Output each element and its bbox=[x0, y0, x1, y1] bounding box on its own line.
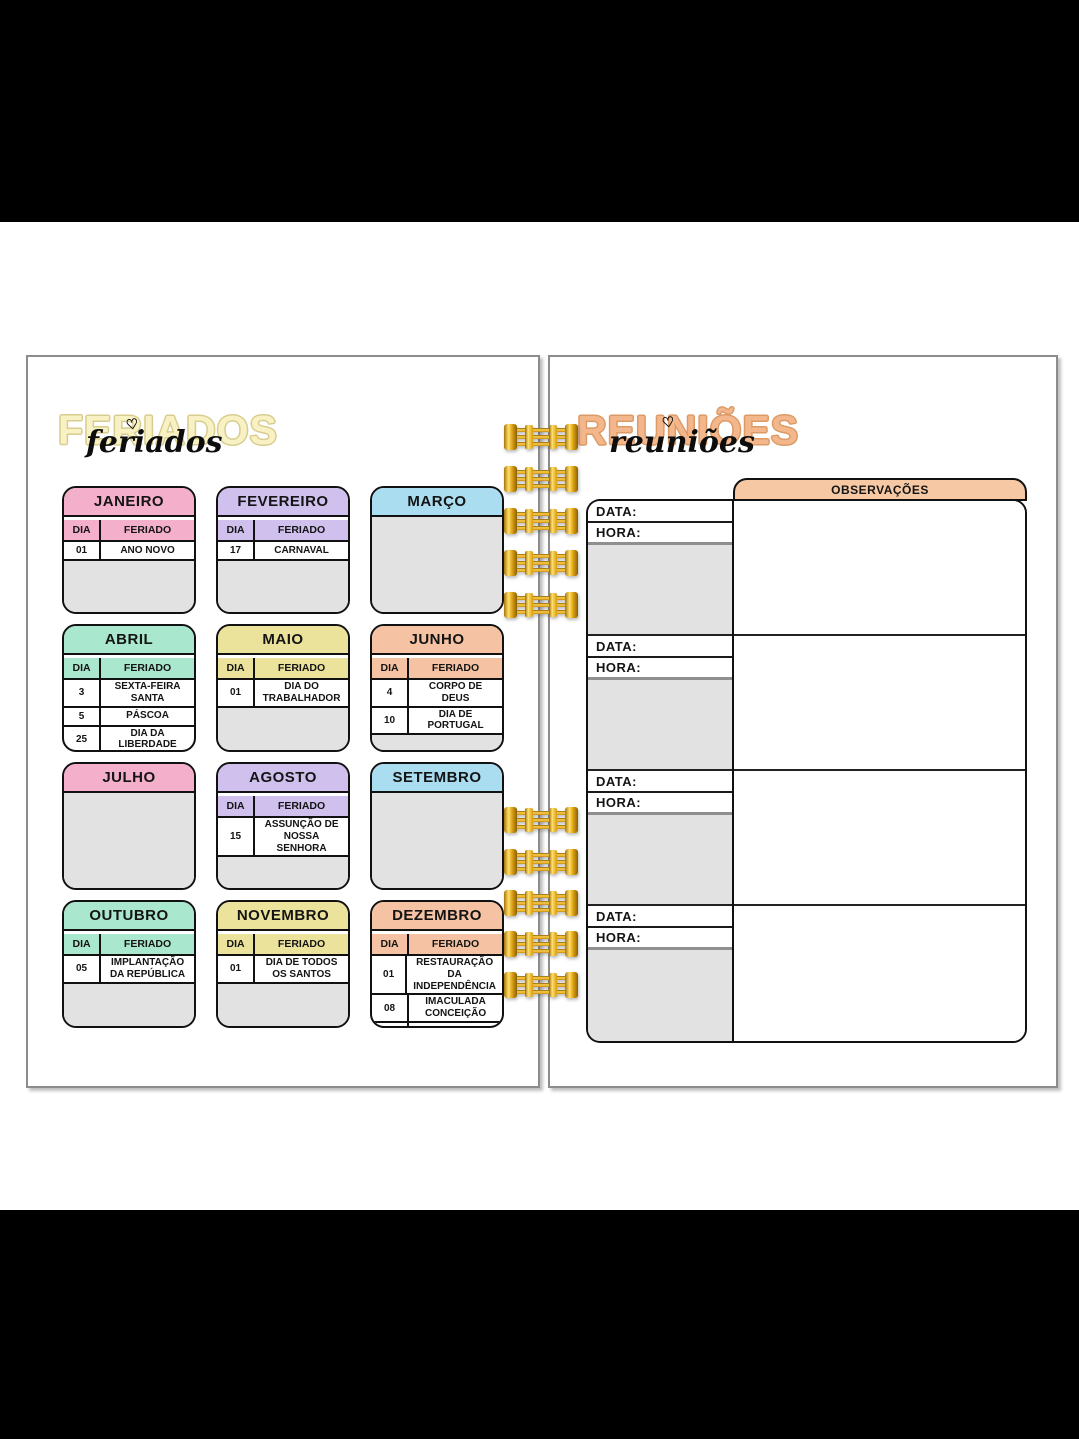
binder-ring bbox=[504, 424, 578, 450]
holiday-cell: ANO NOVO bbox=[101, 542, 194, 559]
time-label: HORA: bbox=[596, 930, 641, 945]
meetings-title-outline: REUNIÕES bbox=[577, 410, 799, 451]
month-card-maio: MAIO DIA FERIADO 01 DIA DO TRABALHADOR bbox=[216, 624, 350, 752]
day-cell: 4 bbox=[372, 680, 409, 706]
table-row: 10 DIA DE PORTUGAL bbox=[372, 708, 502, 736]
month-name: JANEIRO bbox=[64, 488, 194, 517]
date-field: DATA: bbox=[588, 771, 732, 793]
notes-area bbox=[64, 984, 194, 1026]
table-row: 01 DIA DE TODOS OS SANTOS bbox=[218, 956, 348, 984]
month-name: JUNHO bbox=[372, 626, 502, 655]
holiday-cell: NATAL bbox=[409, 1023, 502, 1028]
table-row: 17 CARNAVAL bbox=[218, 542, 348, 561]
col-holiday: FERIADO bbox=[409, 934, 502, 954]
table-row: 01 DIA DO TRABALHADOR bbox=[218, 680, 348, 708]
table-header: DIA FERIADO bbox=[64, 934, 194, 956]
notes-area bbox=[588, 950, 732, 1041]
day-cell: 01 bbox=[64, 542, 101, 559]
observations-cell-2 bbox=[734, 636, 1025, 771]
binder-ring bbox=[504, 508, 578, 534]
month-name: NOVEMBRO bbox=[218, 902, 348, 931]
month-card-agosto: AGOSTO DIA FERIADO 15 ASSUNÇÃO DE NOSSA … bbox=[216, 762, 350, 890]
heart-icon: ♡ bbox=[661, 413, 676, 432]
time-label: HORA: bbox=[596, 660, 641, 675]
binder-ring bbox=[504, 466, 578, 492]
holidays-page: FERIADOS feriados ♡ JANEIRO DIA FERIADO … bbox=[26, 355, 540, 1088]
holiday-cell: IMACULADA CONCEIÇÃO bbox=[409, 995, 502, 1021]
notes-area bbox=[64, 561, 194, 612]
holiday-cell: ASSUNÇÃO DE NOSSA SENHORA bbox=[255, 818, 348, 855]
month-card-abril: ABRIL DIA FERIADO 3 SEXTA-FEIRA SANTA 5 … bbox=[62, 624, 196, 752]
holiday-cell: DIA DA LIBERDADE bbox=[101, 727, 194, 752]
time-field: HORA: bbox=[588, 793, 732, 815]
day-cell: 25 bbox=[64, 727, 101, 752]
month-name: JULHO bbox=[64, 764, 194, 793]
notes-area bbox=[372, 517, 502, 612]
table-header: DIA FERIADO bbox=[372, 934, 502, 956]
table-row: 25 DIA DA LIBERDADE bbox=[64, 727, 194, 752]
holiday-cell: DIA DO TRABALHADOR bbox=[255, 680, 348, 706]
col-holiday: FERIADO bbox=[255, 658, 348, 678]
month-card-novembro: NOVEMBRO DIA FERIADO 01 DIA DE TODOS OS … bbox=[216, 900, 350, 1028]
col-day: DIA bbox=[64, 520, 101, 540]
observations-column bbox=[732, 499, 1027, 1043]
table-header: DIA FERIADO bbox=[64, 658, 194, 680]
month-name: SETEMBRO bbox=[372, 764, 502, 793]
date-label: DATA: bbox=[596, 639, 637, 654]
holidays-title-outline: FERIADOS bbox=[58, 410, 278, 451]
date-label: DATA: bbox=[596, 774, 637, 789]
notes-area bbox=[588, 545, 732, 634]
col-day: DIA bbox=[218, 796, 255, 816]
notes-area bbox=[218, 857, 348, 888]
notes-area bbox=[372, 793, 502, 888]
white-backdrop: FERIADOS feriados ♡ JANEIRO DIA FERIADO … bbox=[0, 222, 1079, 1210]
table-header: DIA FERIADO bbox=[218, 796, 348, 818]
day-cell: 05 bbox=[64, 956, 101, 982]
date-label: DATA: bbox=[596, 504, 637, 519]
month-card-setembro: SETEMBRO bbox=[370, 762, 504, 890]
binder-ring bbox=[504, 550, 578, 576]
holiday-cell: DIA DE TODOS OS SANTOS bbox=[255, 956, 348, 982]
month-card-marco: MARÇO bbox=[370, 486, 504, 614]
month-name: MAIO bbox=[218, 626, 348, 655]
notes-area bbox=[588, 815, 732, 904]
col-day: DIA bbox=[218, 934, 255, 954]
col-day: DIA bbox=[218, 658, 255, 678]
month-name: OUTUBRO bbox=[64, 902, 194, 931]
month-card-junho: JUNHO DIA FERIADO 4 CORPO DE DEUS 10 DIA… bbox=[370, 624, 504, 752]
table-header: DIA FERIADO bbox=[64, 520, 194, 542]
heart-icon: ♡ bbox=[125, 415, 140, 434]
holiday-cell: RESTAURAÇÃO DA INDEPENDÊNCIA bbox=[407, 956, 502, 993]
table-row: 15 ASSUNÇÃO DE NOSSA SENHORA bbox=[218, 818, 348, 857]
day-cell: 25 bbox=[372, 1023, 409, 1028]
table-row: 05 IMPLANTAÇÃO DA REPÚBLICA bbox=[64, 956, 194, 984]
month-name: MARÇO bbox=[372, 488, 502, 517]
col-holiday: FERIADO bbox=[101, 934, 194, 954]
binder-ring bbox=[504, 849, 578, 875]
holiday-cell: SEXTA-FEIRA SANTA bbox=[101, 680, 194, 706]
day-cell: 17 bbox=[218, 542, 255, 559]
table-row: 08 IMACULADA CONCEIÇÃO bbox=[372, 995, 502, 1023]
table-row: 25 NATAL bbox=[372, 1023, 502, 1028]
meeting-section-1: DATA: HORA: bbox=[588, 501, 732, 636]
date-field: DATA: bbox=[588, 636, 732, 658]
day-cell: 01 bbox=[372, 956, 407, 993]
binder-ring bbox=[504, 972, 578, 998]
observations-header: OBSERVAÇÕES bbox=[733, 478, 1027, 501]
planner-spread: FERIADOS feriados ♡ JANEIRO DIA FERIADO … bbox=[0, 0, 1079, 1439]
meetings-title: REUNIÕES reuniões ♡ bbox=[577, 410, 799, 451]
day-cell: 10 bbox=[372, 708, 409, 734]
col-day: DIA bbox=[64, 658, 101, 678]
binder-ring bbox=[504, 807, 578, 833]
binder-ring bbox=[504, 592, 578, 618]
notes-area bbox=[218, 561, 348, 612]
date-field: DATA: bbox=[588, 501, 732, 523]
month-name: AGOSTO bbox=[218, 764, 348, 793]
notes-area bbox=[64, 793, 194, 888]
time-label: HORA: bbox=[596, 795, 641, 810]
col-day: DIA bbox=[372, 658, 409, 678]
col-holiday: FERIADO bbox=[255, 520, 348, 540]
table-row: 01 RESTAURAÇÃO DA INDEPENDÊNCIA bbox=[372, 956, 502, 995]
col-day: DIA bbox=[64, 934, 101, 954]
meeting-section-4: DATA: HORA: bbox=[588, 906, 732, 1041]
observations-cell-1 bbox=[734, 501, 1025, 636]
day-cell: 08 bbox=[372, 995, 409, 1021]
table-row: 01 ANO NOVO bbox=[64, 542, 194, 561]
day-cell: 15 bbox=[218, 818, 255, 855]
months-grid: JANEIRO DIA FERIADO 01 ANO NOVO FEVEREIR… bbox=[62, 486, 504, 1028]
meeting-section-2: DATA: HORA: bbox=[588, 636, 732, 771]
observations-cell-4 bbox=[734, 906, 1025, 1041]
date-label: DATA: bbox=[596, 909, 637, 924]
month-card-julho: JULHO bbox=[62, 762, 196, 890]
day-cell: 01 bbox=[218, 956, 255, 982]
holiday-cell: DIA DE PORTUGAL bbox=[409, 708, 502, 734]
holiday-cell: IMPLANTAÇÃO DA REPÚBLICA bbox=[101, 956, 194, 982]
month-name: DEZEMBRO bbox=[372, 902, 502, 931]
time-label: HORA: bbox=[596, 525, 641, 540]
table-header: DIA FERIADO bbox=[218, 658, 348, 680]
notes-area bbox=[218, 984, 348, 1026]
time-field: HORA: bbox=[588, 928, 732, 950]
binder-ring bbox=[504, 931, 578, 957]
month-card-outubro: OUTUBRO DIA FERIADO 05 IMPLANTAÇÃO DA RE… bbox=[62, 900, 196, 1028]
notes-area bbox=[372, 735, 502, 750]
table-row: 3 SEXTA-FEIRA SANTA bbox=[64, 680, 194, 708]
col-day: DIA bbox=[218, 520, 255, 540]
month-card-dezembro: DEZEMBRO DIA FERIADO 01 RESTAURAÇÃO DA I… bbox=[370, 900, 504, 1028]
month-card-fevereiro: FEVEREIRO DIA FERIADO 17 CARNAVAL bbox=[216, 486, 350, 614]
date-field: DATA: bbox=[588, 906, 732, 928]
holiday-cell: PÁSCOA bbox=[101, 708, 194, 725]
month-name: FEVEREIRO bbox=[218, 488, 348, 517]
month-card-janeiro: JANEIRO DIA FERIADO 01 ANO NOVO bbox=[62, 486, 196, 614]
table-row: 5 PÁSCOA bbox=[64, 708, 194, 727]
col-day: DIA bbox=[372, 934, 409, 954]
table-header: DIA FERIADO bbox=[218, 934, 348, 956]
table-row: 4 CORPO DE DEUS bbox=[372, 680, 502, 708]
day-cell: 01 bbox=[218, 680, 255, 706]
notes-area bbox=[588, 680, 732, 769]
col-holiday: FERIADO bbox=[255, 934, 348, 954]
day-cell: 3 bbox=[64, 680, 101, 706]
observations-cell-3 bbox=[734, 771, 1025, 906]
table-header: DIA FERIADO bbox=[372, 658, 502, 680]
meetings-page: REUNIÕES reuniões ♡ OBSERVAÇÕES DATA: HO… bbox=[548, 355, 1058, 1088]
binder-ring bbox=[504, 890, 578, 916]
table-header: DIA FERIADO bbox=[218, 520, 348, 542]
holidays-title-script: feriados bbox=[86, 428, 223, 458]
holiday-cell: CARNAVAL bbox=[255, 542, 348, 559]
meetings-table-left-column: DATA: HORA: DATA: HORA: DATA: HORA: bbox=[586, 499, 732, 1043]
col-holiday: FERIADO bbox=[409, 658, 502, 678]
holidays-title: FERIADOS feriados ♡ bbox=[58, 410, 278, 451]
col-holiday: FERIADO bbox=[101, 658, 194, 678]
col-holiday: FERIADO bbox=[101, 520, 194, 540]
notes-area bbox=[218, 708, 348, 750]
holiday-cell: CORPO DE DEUS bbox=[409, 680, 502, 706]
day-cell: 5 bbox=[64, 708, 101, 725]
meeting-section-3: DATA: HORA: bbox=[588, 771, 732, 906]
col-holiday: FERIADO bbox=[255, 796, 348, 816]
month-name: ABRIL bbox=[64, 626, 194, 655]
time-field: HORA: bbox=[588, 658, 732, 680]
meetings-table: DATA: HORA: DATA: HORA: DATA: HORA: bbox=[586, 499, 1027, 1043]
meetings-title-script: reuniões bbox=[609, 428, 755, 458]
time-field: HORA: bbox=[588, 523, 732, 545]
